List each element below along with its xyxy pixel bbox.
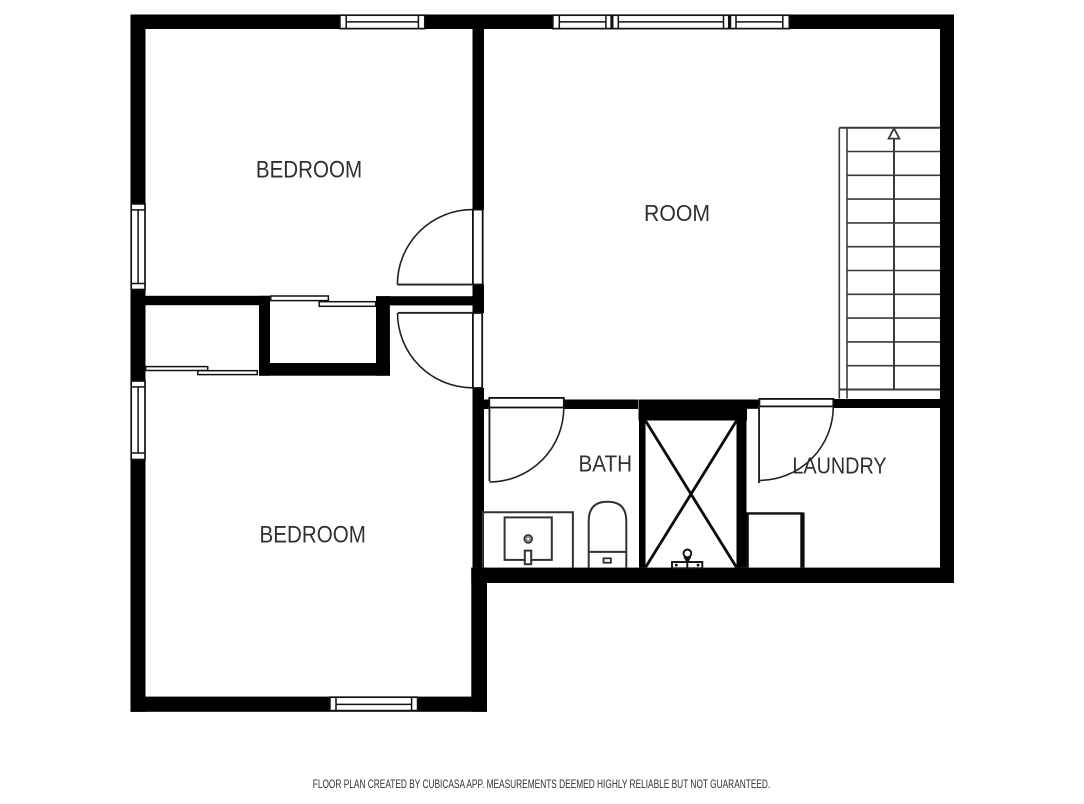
svg-text:BEDROOM: BEDROOM [256, 156, 362, 183]
svg-text:LAUNDRY: LAUNDRY [792, 452, 886, 478]
svg-text:BATH: BATH [579, 451, 633, 477]
svg-text:ROOM: ROOM [644, 200, 710, 226]
svg-text:FLOOR PLAN CREATED BY CUBICASA: FLOOR PLAN CREATED BY CUBICASA APP. MEAS… [313, 778, 771, 791]
svg-text:BEDROOM: BEDROOM [260, 522, 366, 549]
